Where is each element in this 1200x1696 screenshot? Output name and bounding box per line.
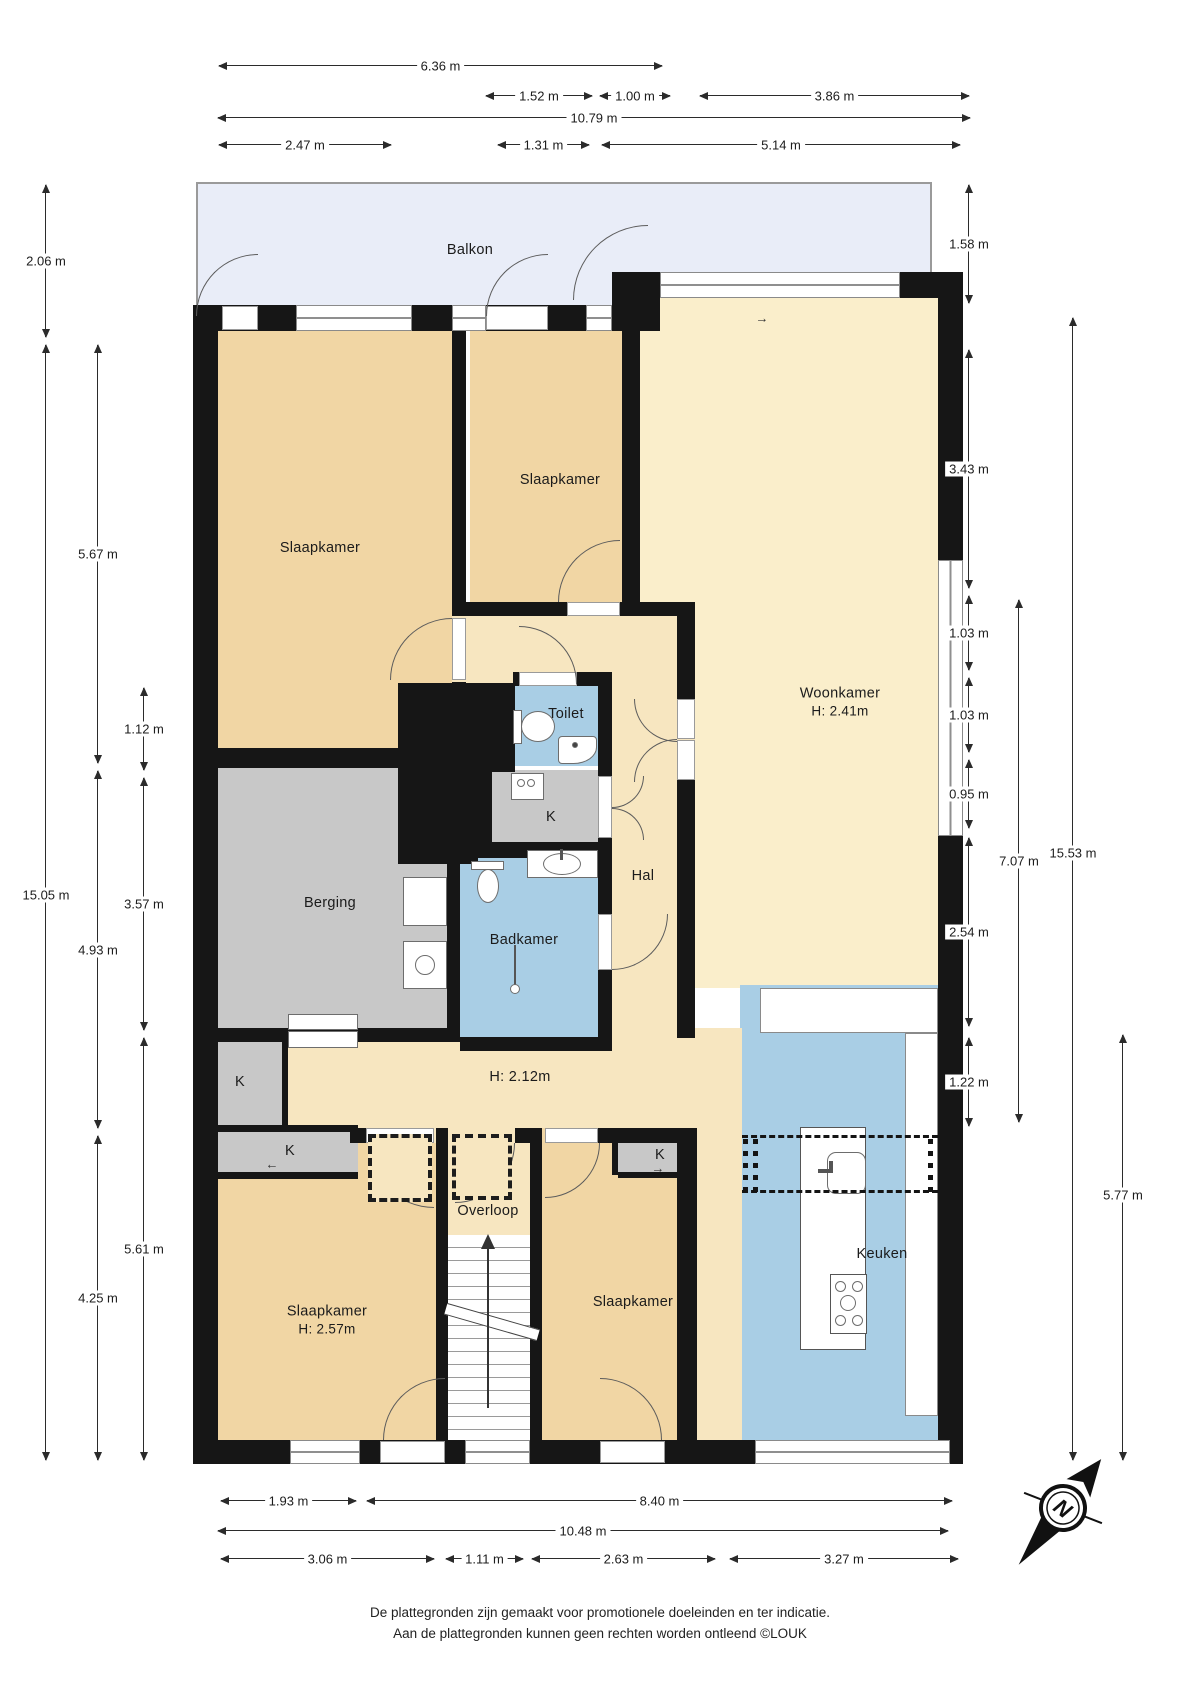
dimension: 1.03 m <box>968 678 969 752</box>
dimension: 1.52 m <box>486 95 592 96</box>
dimension-label: 0.95 m <box>945 787 993 802</box>
door-opening <box>598 914 612 970</box>
dimension-label: 15.53 m <box>1046 846 1101 861</box>
dimension: 1.12 m <box>143 688 144 770</box>
boiler-icon <box>511 773 544 800</box>
wall <box>598 672 612 1040</box>
dimension-label: 3.43 m <box>945 462 993 477</box>
dimension-label: 3.27 m <box>820 1552 868 1567</box>
room-label-hal-height: H: 2.12m <box>489 1069 550 1085</box>
room-label-overloop: Overloop <box>457 1203 518 1219</box>
dimension: 3.86 m <box>700 95 969 96</box>
dimension-label: 5.61 m <box>120 1242 168 1257</box>
dimension: 10.79 m <box>218 117 970 118</box>
hatch <box>288 1014 358 1030</box>
boiler-dial <box>527 779 535 787</box>
dimension: 1.31 m <box>498 144 589 145</box>
wall <box>677 780 695 1038</box>
wall <box>460 1037 612 1051</box>
dimension-label: 8.40 m <box>636 1494 684 1509</box>
dimension-label: 1.11 m <box>461 1552 508 1567</box>
double-door-opening <box>677 699 695 739</box>
dimension: 5.67 m <box>97 345 98 763</box>
dimension: 7.07 m <box>1018 600 1019 1122</box>
burner <box>852 1315 863 1326</box>
dimension: 4.93 m <box>97 771 98 1128</box>
wall <box>218 1172 358 1179</box>
dimension: 1.11 m <box>446 1558 523 1559</box>
closet-center-fill <box>492 770 598 842</box>
dimension-label: 2.47 m <box>281 138 329 153</box>
wall <box>677 1128 697 1440</box>
wall <box>452 331 466 616</box>
kast-strip-arrow: ← <box>266 1157 279 1172</box>
dimension-label: 2.63 m <box>600 1552 648 1567</box>
window <box>755 1440 950 1464</box>
dimension: 15.05 m <box>45 345 46 1460</box>
wall <box>530 1128 542 1440</box>
wall <box>938 272 963 1464</box>
dimension: 3.27 m <box>730 1558 958 1559</box>
dimension: 2.47 m <box>219 144 391 145</box>
compass-icon: N <box>992 1436 1142 1596</box>
wall <box>618 1172 677 1178</box>
door-opening <box>380 1441 445 1463</box>
dimension: 2.54 m <box>968 838 969 1026</box>
cabinet-dashed-line <box>742 1135 938 1138</box>
dimension: 10.48 m <box>218 1530 948 1531</box>
disclaimer-line-2: Aan de plattegronden kunnen geen rechten… <box>0 1626 1200 1641</box>
wall <box>282 1038 288 1128</box>
entry-arrow: → <box>756 311 769 326</box>
dotted-marks <box>928 1139 933 1197</box>
shower-head-icon <box>510 984 520 994</box>
stairs-arrow-head <box>481 1234 495 1249</box>
burner <box>835 1315 846 1326</box>
dimension-label: 3.06 m <box>304 1552 352 1567</box>
dimension: 1.03 m <box>968 596 969 670</box>
burner <box>852 1281 863 1292</box>
cabinet-dashed-line <box>742 1190 938 1193</box>
dimension-label: 1.00 m <box>611 89 659 104</box>
room-label-slaapkamer-top-left: Slaapkamer <box>280 540 360 556</box>
burner <box>840 1295 856 1311</box>
dimension: 2.63 m <box>532 1558 715 1559</box>
dimension-label: 3.57 m <box>120 897 168 912</box>
dimension: 3.06 m <box>221 1558 434 1559</box>
shower-hose <box>514 945 516 985</box>
dimension: 2.06 m <box>45 185 46 337</box>
room-label-badkamer: Badkamer <box>490 932 559 948</box>
door-opening <box>567 602 620 616</box>
room-label-keuken: Keuken <box>857 1246 908 1262</box>
dimension: 6.36 m <box>219 65 662 66</box>
bathroom-toilet-bowl <box>477 869 499 903</box>
room-label-kast-center: K <box>546 809 556 825</box>
room-label-kast-left-lower: K <box>285 1143 295 1159</box>
wall <box>677 616 695 699</box>
wall <box>478 772 492 842</box>
wall <box>193 305 218 1464</box>
dimension-label: 4.93 m <box>74 942 122 957</box>
closet-left-upper-fill <box>218 1038 282 1125</box>
dimension: 5.61 m <box>143 1038 144 1460</box>
room-label-berging: Berging <box>304 895 356 911</box>
room-label-toilet: Toilet <box>548 706 584 722</box>
dimension: 1.22 m <box>968 1038 969 1126</box>
dimension: 1.58 m <box>968 185 969 303</box>
floorplan: BalkonSlaapkamerSlaapkamerToiletKBerging… <box>0 0 1200 1696</box>
wall <box>218 748 398 768</box>
closet-right-fill <box>618 1140 677 1175</box>
hatch <box>288 1031 358 1048</box>
dimension-label: 15.05 m <box>19 888 74 903</box>
dimension-label: 5.77 m <box>1099 1188 1147 1203</box>
wall <box>622 331 640 602</box>
dotted-marks <box>753 1139 758 1197</box>
dimension-label: 1.52 m <box>515 89 563 104</box>
dimension-label: 2.54 m <box>945 925 993 940</box>
dimension-label: 5.67 m <box>74 547 122 562</box>
dimension-label: 1.03 m <box>945 626 993 641</box>
door-opening <box>598 776 612 838</box>
shaft <box>398 683 515 772</box>
dimension-label: 1.58 m <box>945 237 993 252</box>
dimension-label: 2.06 m <box>22 254 70 269</box>
kitchen-counter-top <box>760 988 938 1033</box>
dimension-label: 1.93 m <box>265 1494 313 1509</box>
door-opening <box>600 1441 665 1463</box>
room-label-slaapkamer-bottom-right: Slaapkamer <box>593 1294 673 1310</box>
door-opening <box>545 1128 598 1143</box>
dimension: 1.93 m <box>221 1500 356 1501</box>
dimension-label: 10.48 m <box>556 1524 611 1539</box>
dimension-label: 6.36 m <box>417 59 465 74</box>
hatch-dashed-box <box>452 1134 512 1200</box>
stairs-arrow-line <box>487 1248 489 1408</box>
dimension-label: 7.07 m <box>995 854 1043 869</box>
dimension: 0.95 m <box>968 760 969 828</box>
window <box>660 272 900 298</box>
stairs-fill <box>448 1235 530 1440</box>
room-label-balkon: Balkon <box>447 242 493 258</box>
room-label-slaapkamer-top-center: Slaapkamer <box>520 472 600 488</box>
washer-door <box>415 955 435 975</box>
room-label-slaapkamer-bottom-left: SlaapkamerH: 2.57m <box>287 1304 367 1337</box>
tap-dot <box>572 742 578 748</box>
dimension: 5.77 m <box>1122 1035 1123 1460</box>
appliance <box>403 877 447 926</box>
dimension-label: 10.79 m <box>567 111 622 126</box>
disclaimer-line-1: De plattegronden zijn gemaakt voor promo… <box>0 1605 1200 1620</box>
dimension: 3.43 m <box>968 350 969 588</box>
dotted-marks <box>743 1139 748 1197</box>
hatch-dashed-box <box>368 1134 432 1202</box>
dimension: 3.57 m <box>143 778 144 1030</box>
bathroom-tap <box>560 849 563 860</box>
room-label-kast-left-upper: K <box>235 1074 245 1090</box>
window <box>290 1440 360 1464</box>
dimension: 5.14 m <box>602 144 960 145</box>
wall <box>350 1128 366 1143</box>
wall <box>612 1140 618 1175</box>
window <box>452 305 486 331</box>
dimension-label: 3.86 m <box>811 89 859 104</box>
double-door-opening <box>677 740 695 780</box>
window <box>586 305 612 331</box>
dimension: 15.53 m <box>1072 318 1073 1460</box>
dimension-label: 1.22 m <box>945 1075 993 1090</box>
dimension-label: 5.14 m <box>757 138 805 153</box>
burner <box>835 1281 846 1292</box>
dimension: 8.40 m <box>367 1500 952 1501</box>
door-opening <box>452 618 466 680</box>
dimension: 1.00 m <box>600 95 670 96</box>
kitchen-counter-right <box>905 1033 938 1416</box>
dimension-label: 1.12 m <box>120 722 168 737</box>
room-label-hal: Hal <box>632 868 655 884</box>
room-label-woonkamer: WoonkamerH: 2.41m <box>800 686 881 719</box>
island-tap <box>829 1161 833 1173</box>
wall <box>218 1125 358 1132</box>
window <box>465 1440 530 1464</box>
island-sink-icon <box>827 1152 866 1194</box>
dimension: 4.25 m <box>97 1136 98 1460</box>
dimension-label: 1.03 m <box>945 708 993 723</box>
wall <box>447 858 460 1037</box>
window <box>296 305 412 331</box>
dimension-label: 1.31 m <box>520 138 568 153</box>
boiler-dial <box>517 779 525 787</box>
kast-right-arrow: → <box>652 1161 665 1176</box>
dimension-label: 4.25 m <box>74 1291 122 1306</box>
